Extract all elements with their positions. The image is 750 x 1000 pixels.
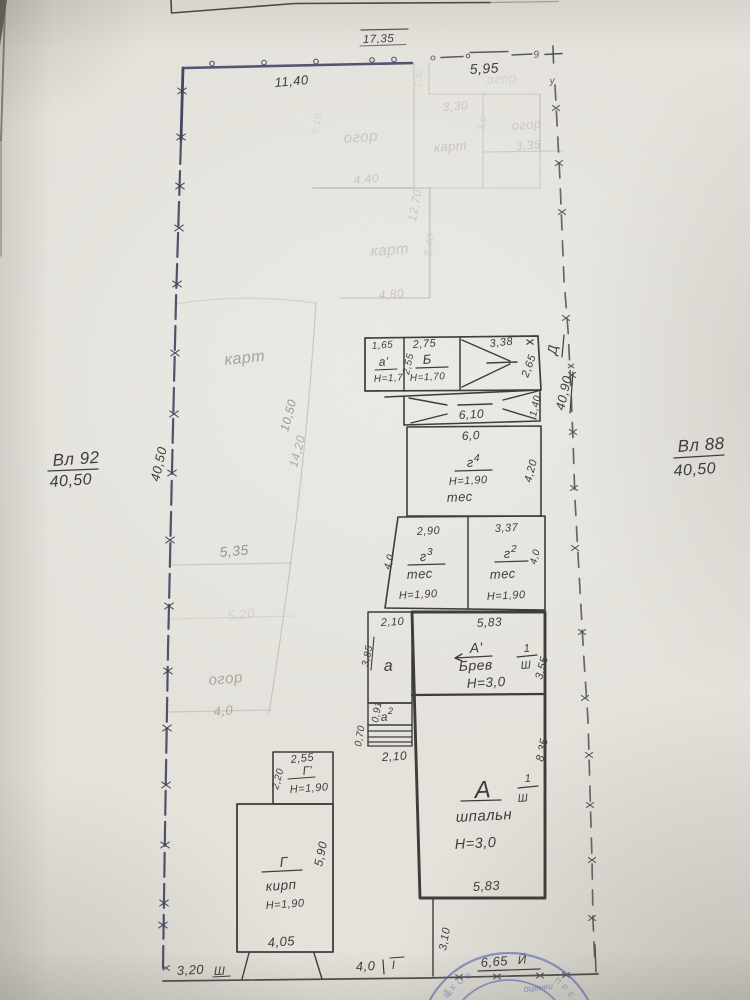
svg-text:1: 1 <box>524 772 532 785</box>
svg-text:4: 4 <box>474 453 480 464</box>
svg-text:5,95: 5,95 <box>469 59 499 77</box>
svg-text:кирп: кирп <box>265 877 297 894</box>
svg-text:3,20: 3,20 <box>176 962 204 978</box>
svg-text:тес: тес <box>406 566 433 582</box>
svg-text:Г': Г' <box>302 763 313 778</box>
svg-text:4,0: 4,0 <box>355 958 376 974</box>
svg-text:Н=1,7: Н=1,7 <box>374 372 404 385</box>
svg-text:3,38: 3,38 <box>489 336 514 350</box>
svg-text:А': А' <box>468 639 484 656</box>
svg-text:6,10: 6,10 <box>458 407 484 422</box>
svg-text:4,80: 4,80 <box>378 286 404 302</box>
svg-text:Н=3,0: Н=3,0 <box>466 674 506 691</box>
svg-text:Вл 88: Вл 88 <box>677 434 725 456</box>
svg-text:40,50: 40,50 <box>673 460 717 480</box>
svg-text:3: 3 <box>427 547 433 558</box>
svg-text:2: 2 <box>387 706 393 716</box>
svg-text:17,35: 17,35 <box>363 33 395 46</box>
svg-text:2,10: 2,10 <box>380 616 405 629</box>
svg-text:тес: тес <box>446 489 473 505</box>
svg-text:11,40: 11,40 <box>274 72 310 90</box>
svg-text:Брев: Брев <box>458 656 493 674</box>
svg-text:г: г <box>503 546 511 561</box>
svg-text:2,75: 2,75 <box>411 337 437 351</box>
svg-text:Н=1,70: Н=1,70 <box>410 371 446 384</box>
svg-text:Н=1,90: Н=1,90 <box>487 589 527 603</box>
svg-text:3,37: 3,37 <box>495 522 519 535</box>
svg-text:карт: карт <box>433 138 467 155</box>
svg-text:4,05: 4,05 <box>267 933 296 950</box>
svg-text:а: а <box>383 658 393 675</box>
svg-text:карт: карт <box>370 240 409 260</box>
svg-text:тес: тес <box>489 566 516 582</box>
svg-text:2,10: 2,10 <box>380 749 407 764</box>
svg-text:5,83: 5,83 <box>476 615 502 630</box>
svg-text:3,30: 3,30 <box>442 98 468 114</box>
svg-text:а': а' <box>378 354 389 369</box>
svg-text:огор: огор <box>343 128 378 147</box>
svg-text:Вл 92: Вл 92 <box>52 448 100 470</box>
svg-text:40,50: 40,50 <box>49 471 93 491</box>
svg-text:шпальн: шпальн <box>455 806 512 826</box>
svg-text:1: 1 <box>523 642 531 655</box>
svg-text:огор: огор <box>208 669 244 689</box>
svg-text:Ш: Ш <box>517 792 529 805</box>
svg-text:Ш: Ш <box>520 659 532 672</box>
svg-text:5,20: 5,20 <box>227 606 256 623</box>
svg-text:4,0: 4,0 <box>213 702 234 719</box>
svg-text:1,65: 1,65 <box>371 340 393 352</box>
svg-text:Б: Б <box>422 351 432 367</box>
svg-text:2,90: 2,90 <box>416 525 441 538</box>
svg-text:Н=1,90: Н=1,90 <box>449 474 489 488</box>
svg-text:огор: огор <box>511 116 542 133</box>
svg-text:5,35: 5,35 <box>219 542 250 560</box>
svg-text:2: 2 <box>510 544 517 555</box>
svg-text:3,35: 3,35 <box>515 137 541 153</box>
svg-text:4,40: 4,40 <box>353 171 379 187</box>
svg-text:г: г <box>419 549 427 564</box>
svg-text:Н=1,90: Н=1,90 <box>399 588 439 602</box>
svg-text:Н=3,0: Н=3,0 <box>454 835 496 853</box>
svg-text:6,0: 6,0 <box>461 428 480 443</box>
svg-text:5,83: 5,83 <box>472 878 500 894</box>
svg-text:г: г <box>466 455 474 470</box>
